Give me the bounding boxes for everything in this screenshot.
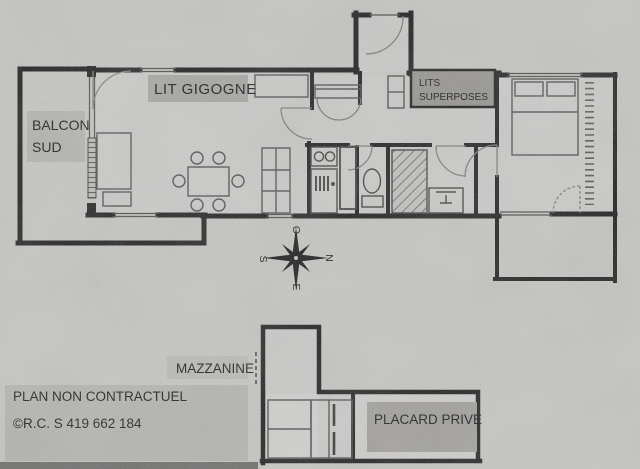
floor-plan-drawing: LIT GIGOGNE BALCON SUD LITS SUPERPOSES M… [0, 0, 640, 469]
photo-grain-overlay [0, 0, 640, 469]
floor-plan-photo: LIT GIGOGNE BALCON SUD LITS SUPERPOSES M… [0, 0, 640, 469]
